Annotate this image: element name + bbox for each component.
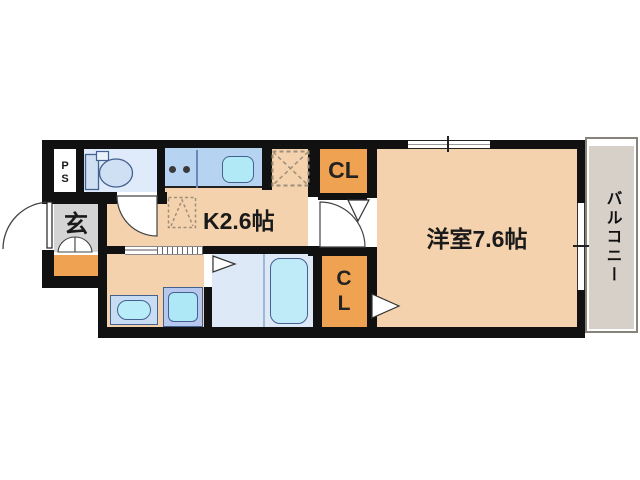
wall-closet-upper-header [318, 193, 367, 200]
wall-bottom [98, 327, 585, 338]
window-top-midline [408, 144, 490, 145]
sliding-door-rail [125, 249, 157, 251]
wall-washroom-bath [204, 287, 212, 327]
wall-closet-column-right-upper [367, 140, 377, 198]
window-top-tick [447, 136, 449, 152]
wall-kitchen-washroom-right [203, 246, 320, 254]
bath-door-opening [204, 254, 212, 287]
balcony-label: バルコニー [585, 146, 638, 329]
wall-closet-column-right-lower [367, 247, 377, 327]
door-vestibule [308, 197, 367, 247]
pipe-space-label: PS [53, 152, 77, 194]
entrance-door-arc [3, 202, 50, 249]
toilet-floor [84, 149, 157, 192]
counter-divider [196, 150, 198, 188]
bathroom-divider-line [263, 254, 265, 327]
wall-step-vertical [98, 192, 107, 338]
western-room-label: 洋室7.6帖 [377, 223, 577, 251]
wall-kitchen-washroom-left [98, 246, 125, 254]
folding-door-hatch [157, 247, 203, 254]
wall-top-right [490, 140, 585, 149]
floorplan-canvas: PS 玄 K2.6帖 CL CL 洋室7.6帖 バルコニー [0, 0, 640, 480]
wall-entrance-bottom [42, 276, 106, 288]
wall-toilet-right [157, 149, 165, 192]
wall-ps-right [76, 149, 84, 192]
vanity-sink-bowl [117, 300, 151, 320]
kitchen-label: K2.6帖 [203, 205, 275, 233]
wall-under-toilet-right [157, 192, 167, 204]
window-top [408, 140, 490, 149]
closet-lower-label: CL [320, 256, 367, 327]
closet-upper-label: CL [320, 148, 367, 193]
stove-burner-dot [169, 166, 176, 173]
kitchen-sink [222, 156, 254, 183]
shoe-cabinet [54, 255, 98, 277]
wall-closet-column-left [308, 140, 320, 197]
entrance-label: 玄 [54, 206, 98, 236]
washing-machine [168, 292, 198, 322]
entrance-door-panel [47, 202, 52, 248]
washroom-sliding-door [125, 246, 203, 255]
bathtub [270, 258, 308, 324]
stove-burner-dot [183, 166, 190, 173]
wall-counter-right [262, 140, 272, 190]
